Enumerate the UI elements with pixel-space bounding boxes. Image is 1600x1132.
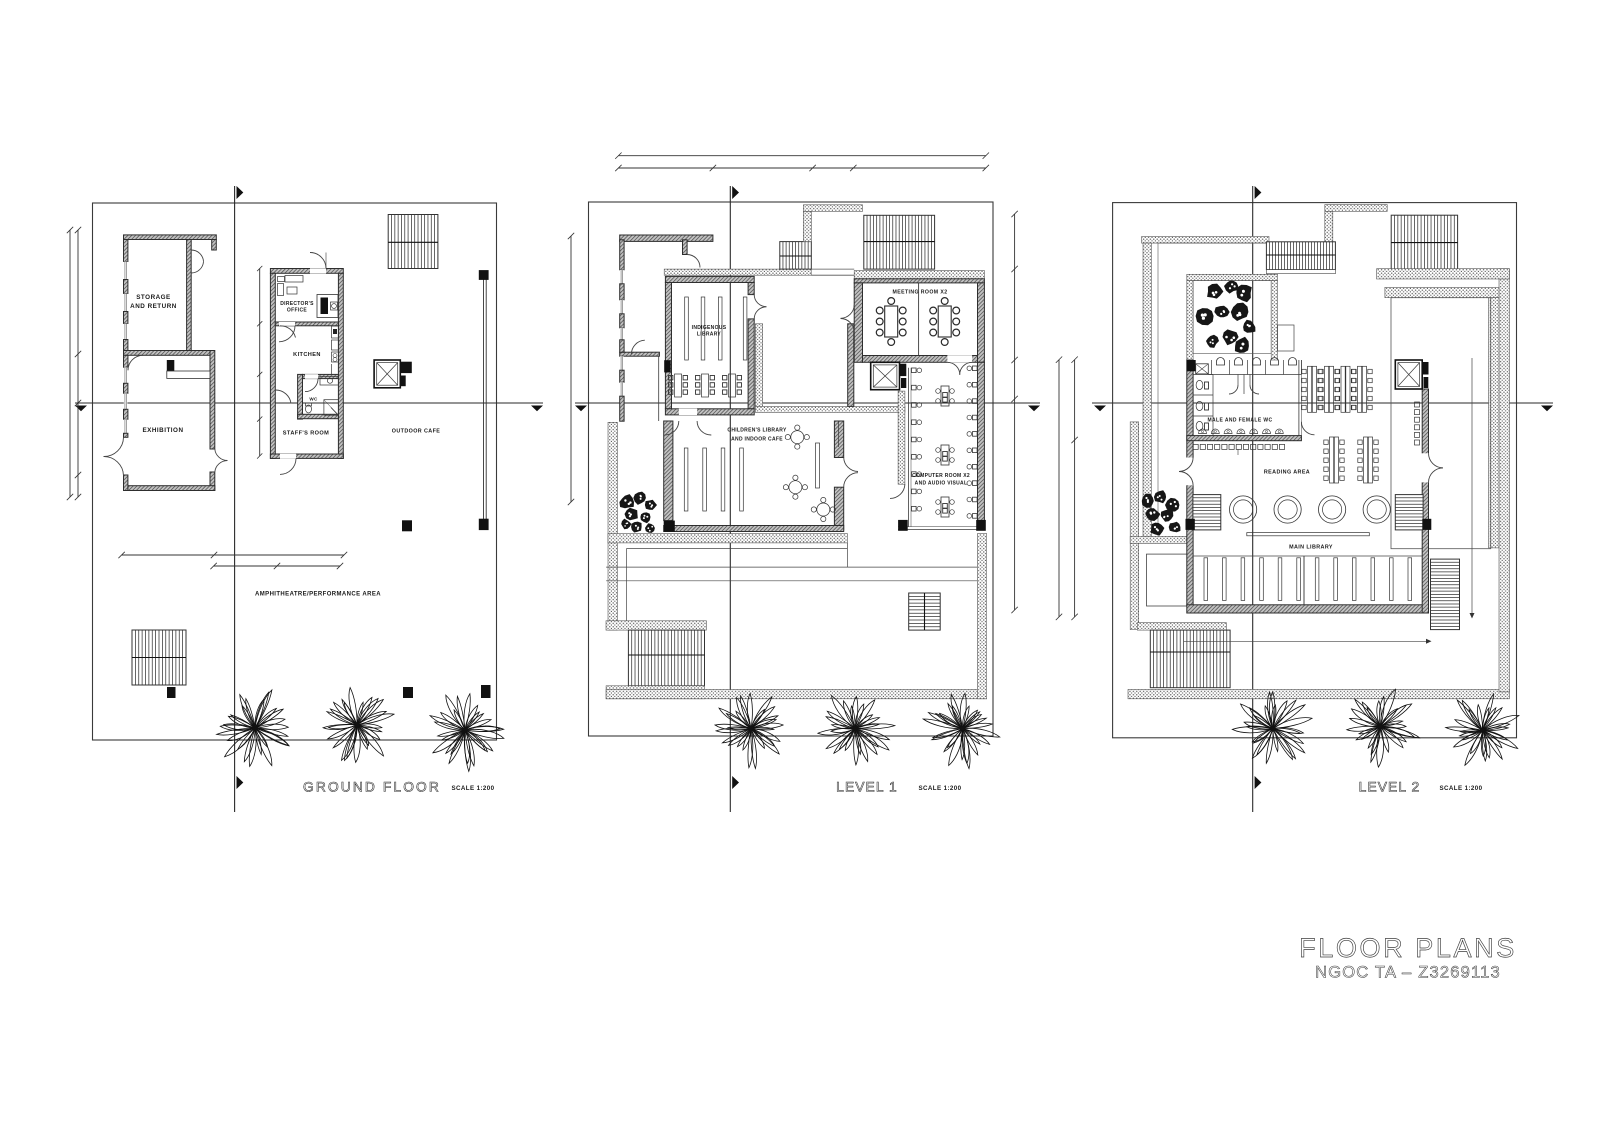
- svg-text:SCALE 1:200: SCALE 1:200: [1440, 785, 1483, 792]
- svg-text:LEVEL 1: LEVEL 1: [836, 780, 898, 795]
- svg-text:OUTDOOR CAFE: OUTDOOR CAFE: [392, 429, 441, 435]
- svg-text:DIRECTOR'S: DIRECTOR'S: [280, 301, 314, 307]
- svg-text:CHILDREN'S LIBRARY: CHILDREN'S LIBRARY: [727, 428, 787, 434]
- svg-text:GROUND FLOOR: GROUND FLOOR: [303, 780, 441, 795]
- svg-text:OFFICE: OFFICE: [287, 308, 307, 314]
- svg-text:INDIGENOUS: INDIGENOUS: [692, 325, 727, 331]
- svg-text:AND AUDIO VISUAL: AND AUDIO VISUAL: [915, 481, 968, 487]
- svg-text:FLOOR PLANS: FLOOR PLANS: [1299, 933, 1517, 963]
- svg-text:LEVEL 2: LEVEL 2: [1359, 780, 1421, 795]
- svg-text:SCALE 1:200: SCALE 1:200: [452, 785, 495, 792]
- svg-text:NGOC TA – Z3269113: NGOC TA – Z3269113: [1315, 964, 1501, 982]
- svg-text:STAFF'S ROOM: STAFF'S ROOM: [283, 431, 329, 437]
- svg-text:AND RETURN: AND RETURN: [130, 303, 177, 310]
- svg-text:MEETING ROOM X2: MEETING ROOM X2: [893, 290, 948, 296]
- svg-text:AND INDOOR CAFE: AND INDOOR CAFE: [731, 437, 783, 443]
- svg-text:MALE AND FEMALE WC: MALE AND FEMALE WC: [1207, 418, 1272, 424]
- svg-text:KITCHEN: KITCHEN: [293, 352, 321, 358]
- svg-text:COMPUTER ROOM X2: COMPUTER ROOM X2: [912, 473, 970, 479]
- svg-text:READING AREA: READING AREA: [1264, 470, 1310, 476]
- svg-text:EXHIBITION: EXHIBITION: [142, 427, 183, 434]
- svg-text:SCALE 1:200: SCALE 1:200: [919, 785, 962, 792]
- svg-text:LIBRARY: LIBRARY: [697, 332, 722, 338]
- svg-text:WC: WC: [309, 397, 318, 402]
- svg-text:AMPHITHEATRE/PERFORMANCE AREA: AMPHITHEATRE/PERFORMANCE AREA: [255, 592, 381, 598]
- svg-text:MAIN LIBRARY: MAIN LIBRARY: [1289, 545, 1333, 551]
- svg-text:STORAGE: STORAGE: [136, 294, 171, 301]
